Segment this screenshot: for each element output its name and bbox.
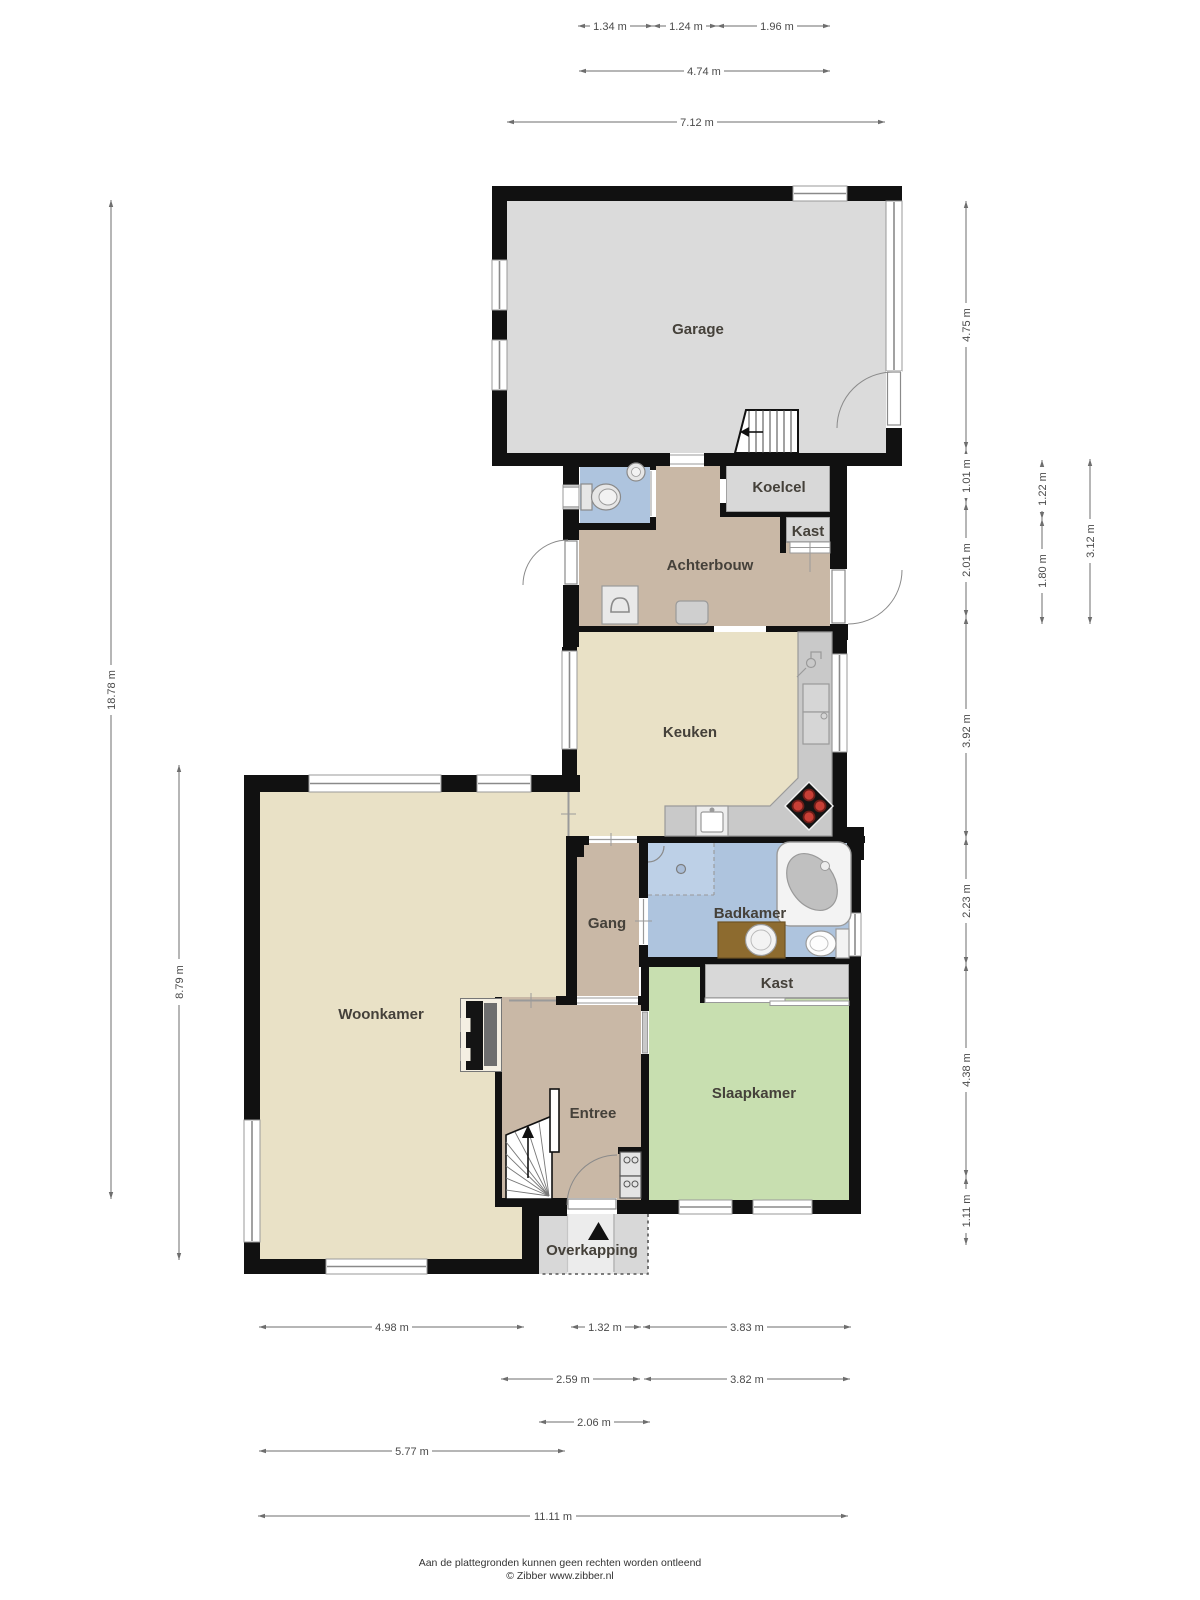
svg-text:4.98 m: 4.98 m	[375, 1322, 409, 1334]
svg-text:8.79 m: 8.79 m	[174, 965, 186, 999]
svg-text:3.83 m: 3.83 m	[730, 1322, 764, 1334]
svg-text:Kast: Kast	[792, 523, 825, 540]
svg-text:Keuken: Keuken	[663, 724, 717, 741]
svg-text:11.11 m: 11.11 m	[534, 1511, 572, 1523]
svg-text:Kast: Kast	[761, 975, 794, 992]
svg-text:1.96 m: 1.96 m	[760, 21, 794, 33]
svg-text:1.24 m: 1.24 m	[669, 21, 703, 33]
svg-text:Woonkamer: Woonkamer	[338, 1006, 424, 1023]
svg-text:1.22 m: 1.22 m	[1037, 472, 1049, 506]
svg-text:Gang: Gang	[588, 915, 626, 932]
svg-text:4.38 m: 4.38 m	[961, 1053, 973, 1087]
svg-text:Entree: Entree	[570, 1105, 617, 1122]
svg-text:4.75 m: 4.75 m	[961, 308, 973, 342]
svg-text:2.01 m: 2.01 m	[961, 543, 973, 577]
svg-text:© Zibber www.zibber.nl: © Zibber www.zibber.nl	[506, 1570, 614, 1582]
svg-text:Badkamer: Badkamer	[714, 905, 787, 922]
svg-text:1.01 m: 1.01 m	[961, 459, 973, 493]
svg-text:Achterbouw: Achterbouw	[667, 557, 754, 574]
svg-text:2.23 m: 2.23 m	[961, 884, 973, 918]
svg-text:1.80 m: 1.80 m	[1037, 554, 1049, 588]
svg-text:Koelcel: Koelcel	[752, 479, 805, 496]
svg-text:18.78 m: 18.78 m	[106, 670, 118, 710]
svg-text:1.32 m: 1.32 m	[588, 1322, 622, 1334]
svg-text:Overkapping: Overkapping	[546, 1242, 638, 1259]
svg-text:5.77 m: 5.77 m	[395, 1446, 429, 1458]
svg-text:3.92 m: 3.92 m	[961, 714, 973, 748]
svg-text:Slaapkamer: Slaapkamer	[712, 1085, 796, 1102]
svg-text:1.11 m: 1.11 m	[961, 1195, 973, 1228]
svg-text:3.82 m: 3.82 m	[730, 1374, 764, 1386]
svg-text:2.06 m: 2.06 m	[577, 1417, 611, 1429]
svg-text:1.34 m: 1.34 m	[593, 21, 627, 33]
svg-text:Garage: Garage	[672, 321, 724, 338]
svg-text:7.12 m: 7.12 m	[680, 117, 714, 129]
svg-text:Aan de plattegronden kunnen ge: Aan de plattegronden kunnen geen rechten…	[419, 1557, 702, 1569]
svg-text:4.74 m: 4.74 m	[687, 66, 721, 78]
svg-text:3.12 m: 3.12 m	[1085, 524, 1097, 558]
svg-text:2.59 m: 2.59 m	[556, 1374, 590, 1386]
